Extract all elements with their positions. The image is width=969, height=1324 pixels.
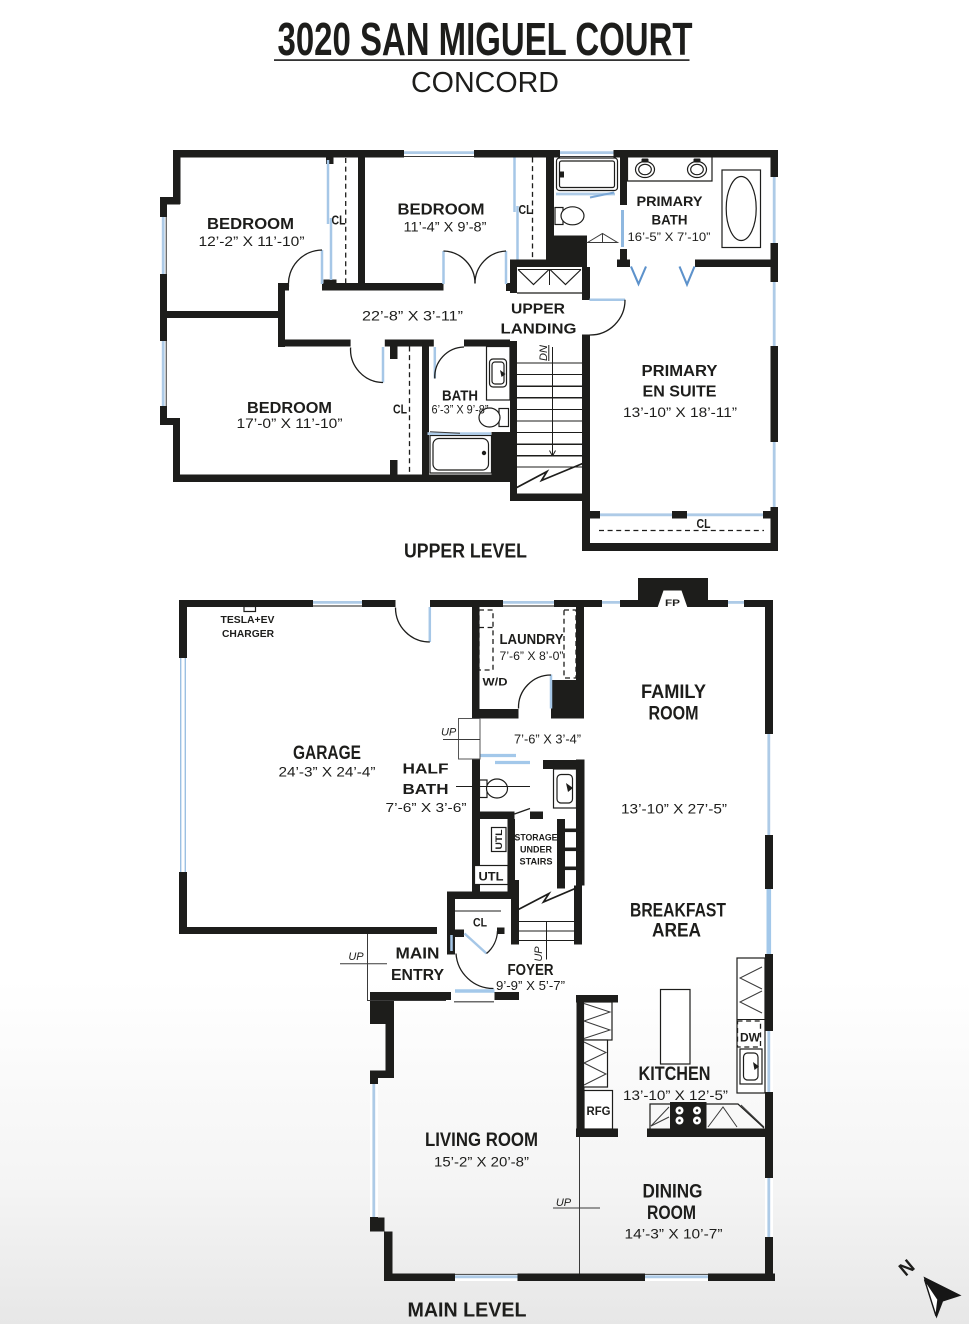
svg-text:13’-10” X 12’-5”: 13’-10” X 12’-5” [623, 1088, 728, 1103]
svg-text:CL: CL [473, 916, 487, 930]
svg-text:ROOM: ROOM [649, 704, 699, 725]
svg-text:FP: FP [665, 598, 681, 609]
svg-text:BEDROOM: BEDROOM [247, 400, 332, 417]
svg-text:UNDER: UNDER [520, 845, 552, 856]
svg-text:STAIRS: STAIRS [520, 857, 553, 868]
svg-text:UP: UP [348, 951, 364, 963]
svg-text:CL: CL [697, 517, 711, 531]
svg-text:7’-6” X 3’-6”: 7’-6” X 3’-6” [386, 800, 467, 815]
svg-text:PRIMARY: PRIMARY [637, 193, 704, 209]
svg-text:STORAGE: STORAGE [515, 833, 558, 844]
svg-text:CL: CL [393, 403, 407, 417]
svg-text:CL: CL [519, 203, 533, 217]
svg-text:TESLA+EV: TESLA+EV [221, 615, 275, 626]
svg-text:24’-3” X 24’-4”: 24’-3” X 24’-4” [279, 765, 376, 780]
svg-text:UP: UP [441, 727, 457, 739]
svg-text:RFG: RFG [587, 1104, 611, 1118]
svg-text:BREAKFAST: BREAKFAST [630, 901, 726, 922]
svg-text:AREA: AREA [652, 921, 701, 942]
svg-text:17’-0” X 11’-10”: 17’-0” X 11’-10” [237, 416, 343, 431]
svg-text:N: N [895, 1256, 919, 1281]
svg-text:9’-9” X 5’-7”: 9’-9” X 5’-7” [496, 979, 565, 993]
svg-text:13’-10” X 18’-11”: 13’-10” X 18’-11” [623, 405, 737, 420]
svg-text:7’-6” X 8’-0”: 7’-6” X 8’-0” [500, 649, 564, 663]
svg-text:LAUNDRY: LAUNDRY [500, 632, 564, 648]
svg-text:HALF: HALF [403, 762, 449, 778]
svg-text:UTL: UTL [494, 829, 505, 849]
svg-text:GARAGE: GARAGE [293, 743, 361, 764]
svg-text:BEDROOM: BEDROOM [207, 216, 294, 233]
svg-text:LANDING: LANDING [501, 322, 577, 338]
svg-text:UP: UP [533, 946, 545, 962]
svg-text:UTL: UTL [479, 870, 504, 884]
svg-text:6’-3” X 9’-8”: 6’-3” X 9’-8” [432, 403, 489, 417]
svg-text:BEDROOM: BEDROOM [398, 202, 485, 219]
svg-text:CL: CL [332, 214, 346, 228]
svg-text:DN: DN [538, 345, 550, 361]
svg-text:DW: DW [740, 1031, 761, 1045]
svg-text:BATH: BATH [403, 782, 449, 798]
svg-text:MAIN: MAIN [396, 946, 440, 963]
svg-text:22’-8” X 3’-11”: 22’-8” X 3’-11” [362, 309, 463, 324]
svg-text:CONCORD: CONCORD [411, 67, 559, 99]
svg-text:16’-5” X 7’-10”: 16’-5” X 7’-10” [628, 230, 711, 244]
svg-text:13’-10” X 27’-5”: 13’-10” X 27’-5” [621, 802, 727, 817]
svg-text:EN SUITE: EN SUITE [643, 384, 717, 401]
svg-text:FAMILY: FAMILY [641, 682, 706, 703]
svg-text:FOYER: FOYER [508, 962, 554, 979]
svg-text:UPPER LEVEL: UPPER LEVEL [404, 541, 527, 563]
svg-text:15’-2” X 20’-8”: 15’-2” X 20’-8” [434, 1155, 529, 1170]
svg-text:14’-3” X 10’-7”: 14’-3” X 10’-7” [625, 1227, 723, 1242]
svg-text:CHARGER: CHARGER [222, 629, 275, 640]
svg-text:3020 SAN MIGUEL COURT: 3020 SAN MIGUEL COURT [278, 13, 693, 65]
svg-text:W/D: W/D [483, 677, 508, 689]
svg-text:ENTRY: ENTRY [391, 967, 444, 984]
svg-text:ROOM: ROOM [647, 1203, 696, 1224]
svg-text:11’-4” X 9’-8”: 11’-4” X 9’-8” [404, 220, 487, 235]
svg-text:12’-2” X 11’-10”: 12’-2” X 11’-10” [199, 234, 305, 249]
svg-text:MAIN LEVEL: MAIN LEVEL [408, 1300, 527, 1322]
svg-text:KITCHEN: KITCHEN [639, 1064, 711, 1085]
svg-text:BATH: BATH [652, 212, 688, 228]
svg-text:PRIMARY: PRIMARY [642, 363, 719, 380]
svg-text:UP: UP [556, 1197, 572, 1209]
svg-text:7’-6” X 3’-4”: 7’-6” X 3’-4” [514, 732, 581, 747]
svg-text:DINING: DINING [643, 1182, 703, 1203]
svg-text:UPPER: UPPER [511, 302, 566, 318]
svg-text:LIVING ROOM: LIVING ROOM [425, 1130, 538, 1151]
